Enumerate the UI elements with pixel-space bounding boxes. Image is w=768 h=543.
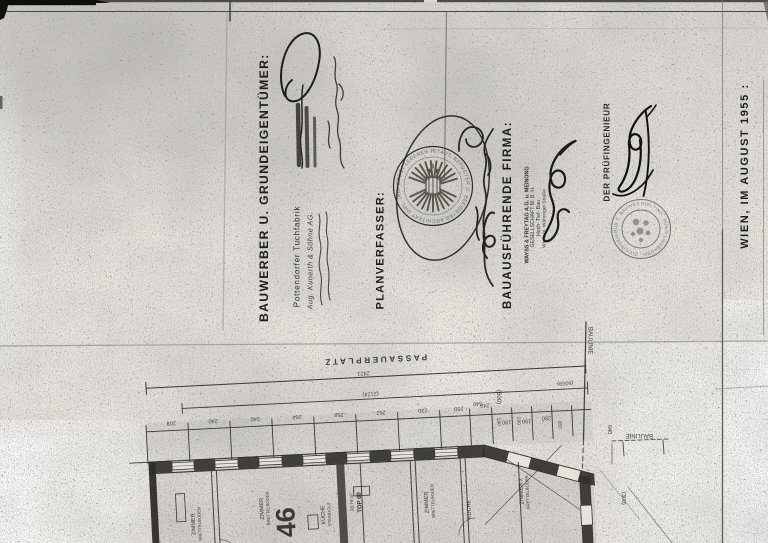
svg-text:540: 540 — [473, 400, 483, 406]
svg-text:250: 250 — [454, 405, 464, 411]
svg-text:BAULINIE: BAULINIE — [587, 327, 593, 354]
svg-text:190: 190 — [515, 416, 521, 425]
svg-text:DIPL. ING. HUGO LINSBAUER · ZI: DIPL. ING. HUGO LINSBAUER · ZIVILINGENIE… — [0, 0, 669, 257]
svg-text:2421: 2421 — [357, 369, 370, 376]
svg-text:STÄDT. BEFUGTER U. BEEIDETER A: STÄDT. BEFUGTER U. BEEIDETER ARCHITEKT D… — [0, 0, 470, 223]
svg-text:(600): (600) — [495, 390, 501, 404]
svg-text:38,76 m²: 38,76 m² — [349, 493, 355, 511]
svg-text:190: 190 — [495, 417, 501, 426]
svg-text:230: 230 — [418, 407, 428, 413]
svg-text:280: 280 — [556, 420, 562, 429]
svg-text:190: 190 — [502, 418, 512, 424]
svg-text:TOP 60: TOP 60 — [357, 491, 364, 512]
svg-text:258: 258 — [334, 411, 344, 417]
svg-text:KÜCHE: KÜCHE — [465, 499, 473, 519]
svg-text:262: 262 — [376, 409, 386, 415]
svg-text:208: 208 — [166, 419, 176, 425]
svg-text:280: 280 — [542, 414, 552, 420]
svg-text:240: 240 — [250, 415, 260, 421]
svg-text:640: 640 — [606, 425, 612, 434]
svg-text:(2124): (2124) — [362, 390, 379, 397]
svg-text:190: 190 — [522, 417, 532, 423]
svg-text:46: 46 — [270, 507, 301, 539]
svg-text:(6009): (6009) — [557, 379, 574, 386]
svg-text:BAULINIE: BAULINIE — [626, 432, 653, 438]
svg-text:240: 240 — [208, 417, 218, 423]
svg-text:264: 264 — [292, 413, 302, 419]
